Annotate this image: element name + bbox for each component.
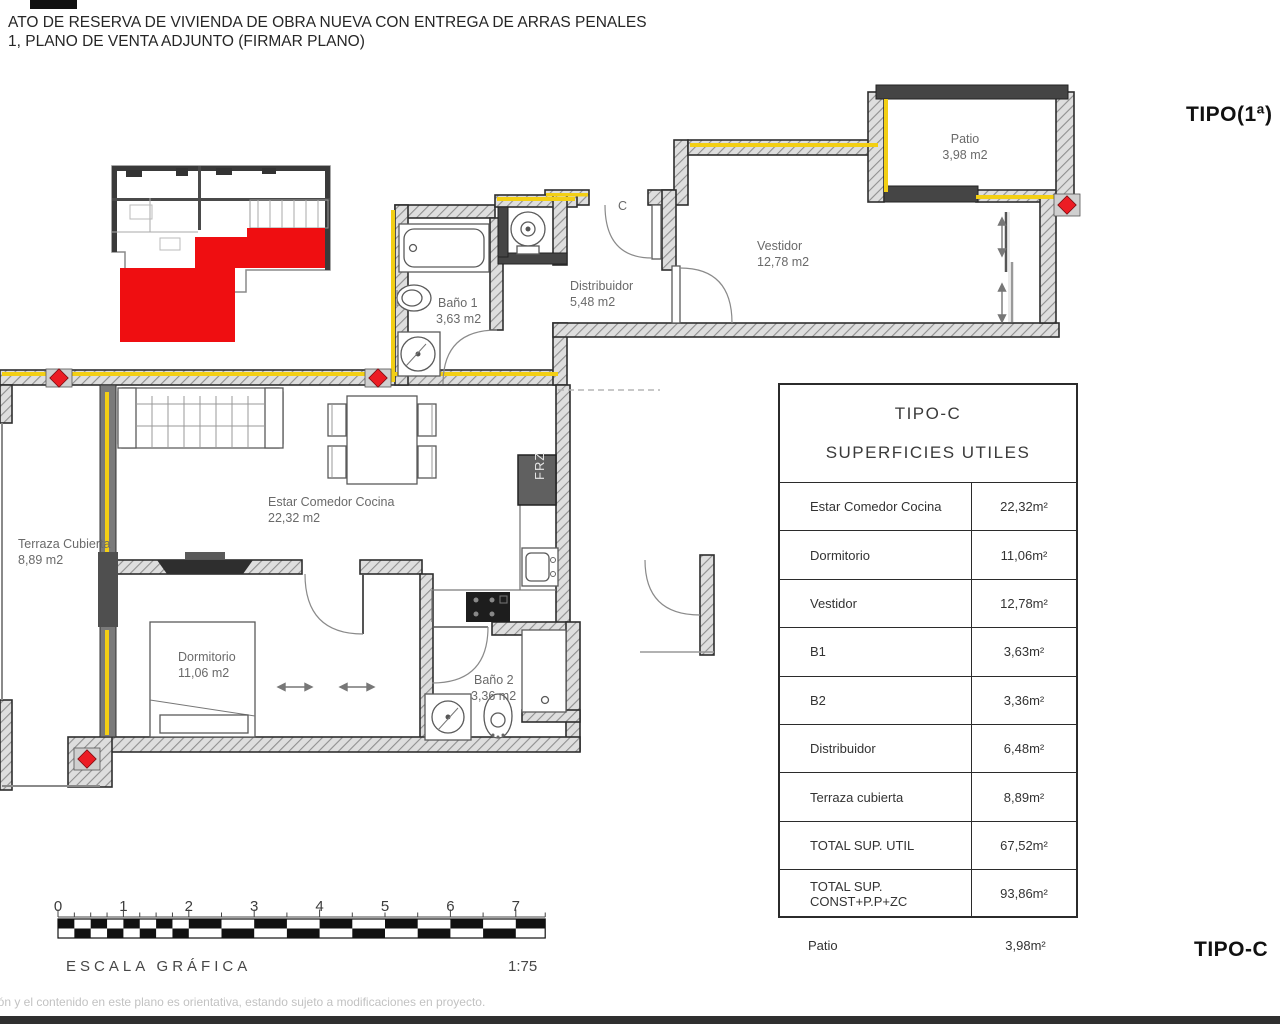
row-value: 22,32m² bbox=[971, 483, 1076, 530]
room-area-terraza: 8,89 m2 bbox=[18, 553, 63, 567]
row-label: Estar Comedor Cocina bbox=[780, 483, 971, 530]
row-value: 11,06m² bbox=[971, 531, 1076, 578]
room-label-terraza: Terraza Cubierta bbox=[18, 537, 110, 551]
room-label-distribuidor: Distribuidor bbox=[570, 279, 633, 293]
row-value: 3,98m² bbox=[973, 930, 1078, 960]
row-label: Distribuidor bbox=[780, 725, 971, 772]
row-value: 93,86m² bbox=[971, 870, 1076, 917]
surfaces-table-header: TIPO-C SUPERFICIES UTILES bbox=[780, 385, 1076, 482]
row-label: B2 bbox=[780, 677, 971, 724]
row-label: TOTAL SUP. UTIL bbox=[780, 822, 971, 869]
tv bbox=[157, 552, 253, 574]
table-row: TOTAL SUP. UTIL67,52m² bbox=[780, 821, 1076, 869]
type-label-top: TIPO(1ª) bbox=[1186, 103, 1272, 127]
entry-label: C bbox=[618, 199, 627, 213]
room-label-vestidor: Vestidor bbox=[757, 239, 802, 253]
washbasin bbox=[398, 332, 440, 376]
scale-bar: 0 1 2 3 4 5 6 7 bbox=[54, 898, 545, 938]
type-label-bottom: TIPO-C bbox=[1194, 938, 1268, 962]
room-label-bano1: Baño 1 bbox=[438, 296, 478, 310]
washing-machine bbox=[511, 212, 545, 254]
plan-sheet: Patio 3,98 m2 Vestidor 12,78 m2 Distribu… bbox=[0, 0, 1280, 1024]
wall-marker bbox=[46, 369, 72, 387]
row-label: TOTAL SUP. CONST+P.P+ZC bbox=[780, 870, 971, 917]
slide-arrow-icon bbox=[278, 684, 374, 691]
table-row: Terraza cubierta8,89m² bbox=[780, 772, 1076, 820]
room-label-dormitorio: Dormitorio bbox=[178, 650, 236, 664]
room-label-bano2: Baño 2 bbox=[474, 673, 514, 687]
key-plan bbox=[112, 166, 330, 342]
row-value: 3,63m² bbox=[971, 628, 1076, 675]
page-bottom-bar bbox=[0, 1016, 1280, 1024]
table-row: Estar Comedor Cocina22,32m² bbox=[780, 482, 1076, 530]
room-label-patio: Patio bbox=[951, 132, 980, 146]
room-area-bano2: 3,36 m2 bbox=[471, 689, 516, 703]
row-label: Dormitorio bbox=[780, 531, 971, 578]
table-row: B23,36m² bbox=[780, 676, 1076, 724]
scale-caption: ESCALA GRÁFICA bbox=[66, 958, 251, 975]
table-row: TOTAL SUP. CONST+P.P+ZC93,86m² bbox=[780, 869, 1076, 917]
contract-title-line1: ATO DE RESERVA DE VIVIENDA DE OBRA NUEVA… bbox=[8, 14, 647, 32]
contract-title-line2: 1, PLANO DE VENTA ADJUNTO (FIRMAR PLANO) bbox=[8, 33, 365, 51]
table-row: Dormitorio11,06m² bbox=[780, 530, 1076, 578]
row-value: 3,36m² bbox=[971, 677, 1076, 724]
kitchen-sink bbox=[522, 548, 558, 586]
bidet bbox=[397, 285, 431, 311]
room-area-vestidor: 12,78 m2 bbox=[757, 255, 809, 269]
wall-marker bbox=[74, 748, 100, 770]
row-label: B1 bbox=[780, 628, 971, 675]
page-edge-mark bbox=[30, 0, 77, 9]
table-title: TIPO-C bbox=[895, 404, 962, 424]
cooktop bbox=[466, 592, 510, 622]
scale-tick: 5 bbox=[381, 898, 389, 915]
bathtub bbox=[399, 224, 489, 272]
room-area-distribuidor: 5,48 m2 bbox=[570, 295, 615, 309]
row-value: 12,78m² bbox=[971, 580, 1076, 627]
row-label: Patio bbox=[778, 930, 973, 960]
scale-ratio: 1:75 bbox=[508, 958, 537, 975]
disclaimer-text: ión y el contenido en este plano es orie… bbox=[0, 995, 485, 1009]
slide-arrow-icon bbox=[999, 218, 1006, 322]
shower-tray bbox=[522, 630, 566, 712]
washbasin bbox=[425, 694, 471, 740]
wall-marker bbox=[1054, 194, 1080, 216]
table-footer-row: Patio 3,98m² bbox=[778, 930, 1078, 960]
sofa bbox=[118, 388, 283, 448]
room-label-estar: Estar Comedor Cocina bbox=[268, 495, 394, 509]
row-label: Vestidor bbox=[780, 580, 971, 627]
row-value: 6,48m² bbox=[971, 725, 1076, 772]
room-area-bano1: 3,63 m2 bbox=[436, 312, 481, 326]
highlighted-unit bbox=[120, 228, 325, 342]
room-area-estar: 22,32 m2 bbox=[268, 511, 320, 525]
row-value: 8,89m² bbox=[971, 773, 1076, 820]
row-label: Terraza cubierta bbox=[780, 773, 971, 820]
table-row: Distribuidor6,48m² bbox=[780, 724, 1076, 772]
dining-table bbox=[328, 396, 436, 484]
room-area-patio: 3,98 m2 bbox=[942, 148, 987, 162]
room-area-dormitorio: 11,06 m2 bbox=[178, 666, 229, 680]
wall-marker bbox=[365, 369, 391, 387]
table-row: B13,63m² bbox=[780, 627, 1076, 675]
table-subtitle: SUPERFICIES UTILES bbox=[826, 443, 1031, 463]
surfaces-table: TIPO-C SUPERFICIES UTILES Estar Comedor … bbox=[778, 383, 1078, 918]
row-value: 67,52m² bbox=[971, 822, 1076, 869]
fridge-label: FRZ bbox=[532, 452, 547, 480]
floor-plan-drawing: Patio 3,98 m2 Vestidor 12,78 m2 Distribu… bbox=[0, 0, 1280, 1024]
table-row: Vestidor12,78m² bbox=[780, 579, 1076, 627]
